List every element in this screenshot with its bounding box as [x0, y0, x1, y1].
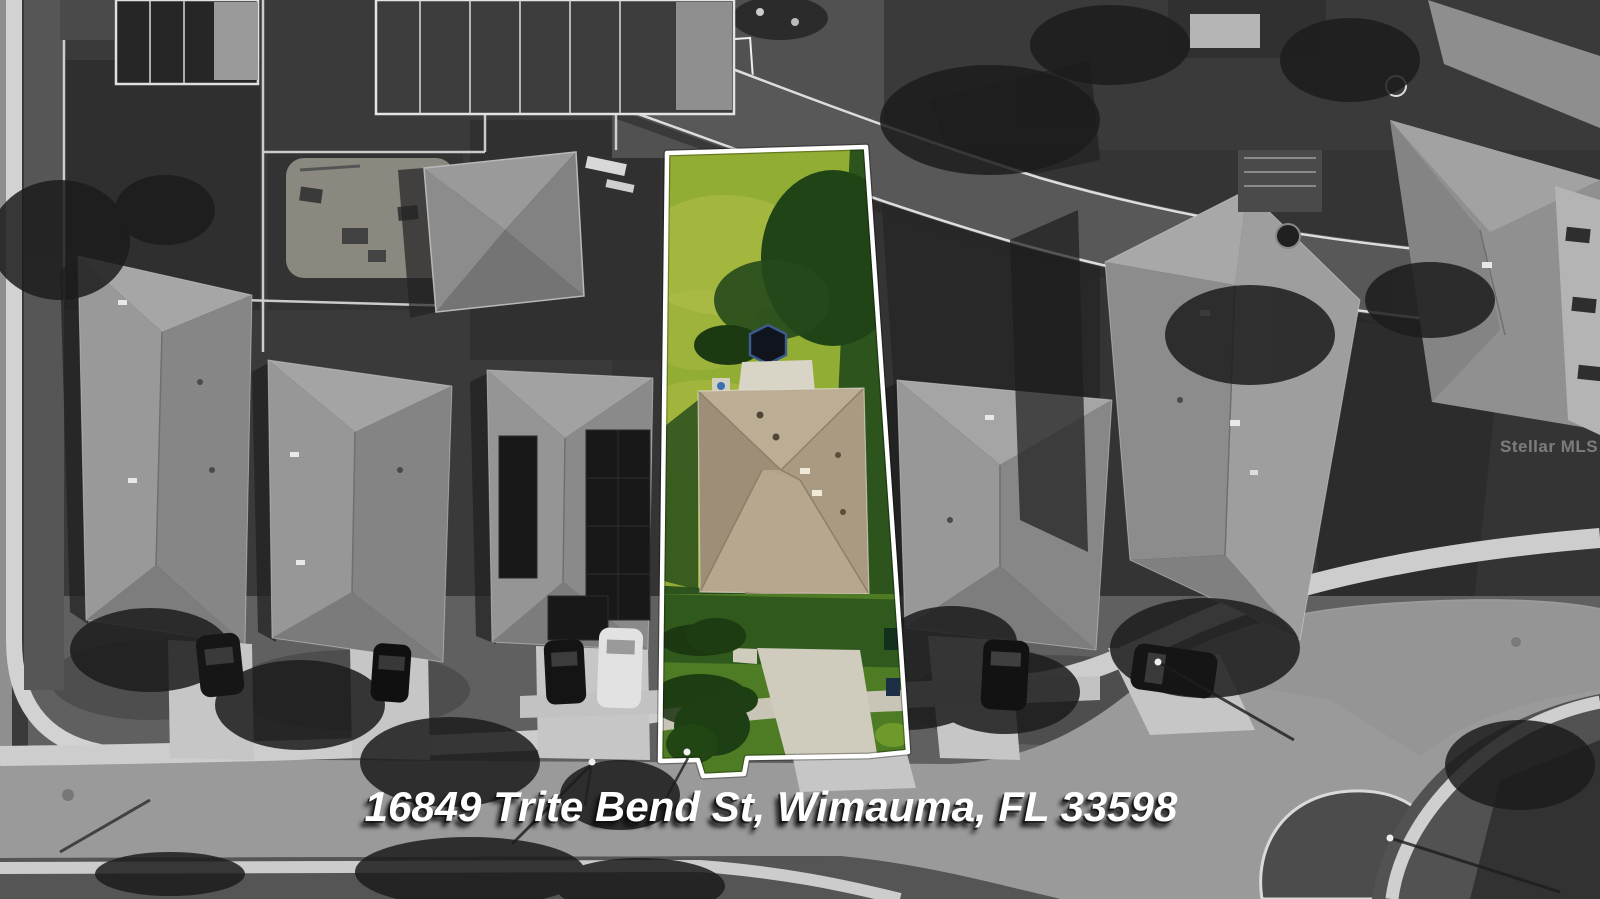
- house-left-2: [252, 360, 452, 662]
- trampoline: [750, 325, 786, 364]
- white-van: [597, 627, 644, 708]
- house-left-3-solar: [470, 370, 653, 650]
- aerial-neighborhood-scene: [0, 0, 1600, 899]
- car: [543, 639, 586, 705]
- mailbox: [684, 749, 691, 756]
- suv: [980, 639, 1030, 711]
- manhole-cover: [62, 789, 74, 801]
- house-left-1: [60, 256, 252, 644]
- mls-watermark: Stellar MLS: [1500, 437, 1598, 457]
- address-overlay: 16849 Trite Bend St, Wimauma, FL 33598: [365, 783, 1178, 831]
- car: [195, 632, 245, 698]
- aerial-property-photo: 16849 Trite Bend St, Wimauma, FL 33598 S…: [0, 0, 1600, 899]
- hot-tub: [1276, 224, 1300, 248]
- pool-cage-large: [376, 0, 734, 114]
- car: [370, 643, 412, 704]
- pergola: [1238, 150, 1322, 212]
- manhole-cover: [1511, 637, 1521, 647]
- front-walkway: [733, 648, 757, 664]
